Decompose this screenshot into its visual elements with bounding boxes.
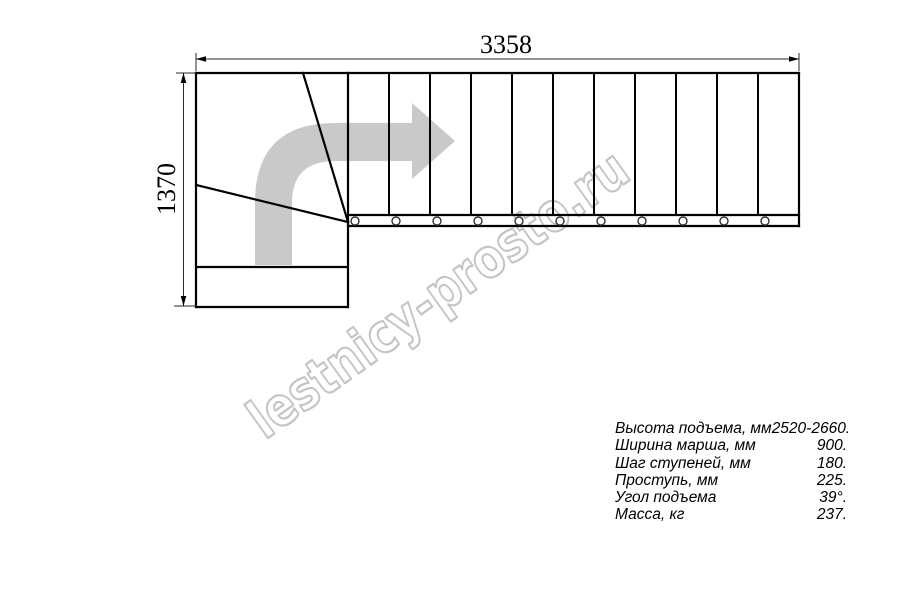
drawing-canvas: lestnicy-prosto.ru [0, 0, 900, 600]
spec-row-flight-width: Ширина марша, мм 900. [615, 437, 847, 454]
specs-table: Высота подъема, мм 2520-2660. Ширина мар… [615, 420, 847, 524]
bolt-icon [556, 217, 564, 225]
watermark-text: lestnicy-prosto.ru [236, 137, 641, 451]
spec-label: Шаг ступеней, мм [615, 455, 751, 472]
spec-row-step-rise: Шаг ступеней, мм 180. [615, 455, 847, 472]
spec-value: 900. [817, 437, 847, 454]
spec-label: Проступь, мм [615, 472, 718, 489]
arrow-left-icon [196, 56, 206, 62]
dimension-height: 1370 [152, 73, 196, 306]
bolt-icon [351, 217, 359, 225]
bolt-icon [761, 217, 769, 225]
dimension-width-label: 3358 [480, 30, 532, 59]
direction-arrow-icon [255, 103, 455, 265]
bolt-icon [720, 217, 728, 225]
bolt-icon [474, 217, 482, 225]
arrow-right-icon [789, 56, 799, 62]
spec-label: Высота подъема, мм [615, 420, 772, 437]
spec-value: 39°. [819, 489, 847, 506]
spec-value: 180. [817, 455, 847, 472]
bolt-icon [433, 217, 441, 225]
spec-row-mass: Масса, кг 237. [615, 506, 847, 523]
spec-row-rise-angle: Угол подъема 39°. [615, 489, 847, 506]
arrow-down-icon [181, 296, 187, 306]
spec-label: Масса, кг [615, 506, 684, 523]
spec-row-rise-height: Высота подъема, мм 2520-2660. [615, 420, 847, 437]
spec-label: Угол подъема [615, 489, 716, 506]
bolt-icon [392, 217, 400, 225]
spec-value: 237. [817, 506, 847, 523]
bolt-icon [679, 217, 687, 225]
spec-value: 225. [817, 472, 847, 489]
bolt-icon [638, 217, 646, 225]
bolt-icon [597, 217, 605, 225]
spec-row-tread-depth: Проступь, мм 225. [615, 472, 847, 489]
arrow-up-icon [181, 73, 187, 83]
stringer-bolts [351, 217, 769, 225]
dimension-width: 3358 [196, 30, 799, 71]
bolt-icon [515, 217, 523, 225]
spec-value: 2520-2660. [772, 420, 850, 437]
dimension-height-label: 1370 [152, 163, 181, 215]
spec-label: Ширина марша, мм [615, 437, 756, 454]
